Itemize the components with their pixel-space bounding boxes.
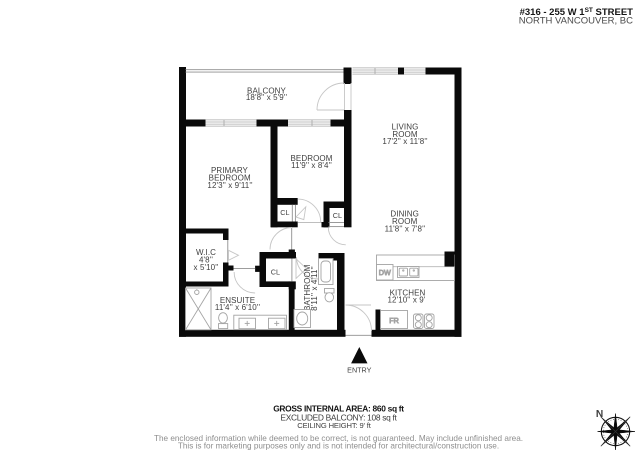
svg-text:11'8'' x 7'8'': 11'8'' x 7'8'' — [385, 224, 426, 233]
svg-text:11'9'' x 8'4'': 11'9'' x 8'4'' — [291, 161, 332, 170]
svg-text:DW: DW — [379, 268, 391, 277]
svg-text:CL: CL — [333, 211, 342, 220]
svg-text:x 5'10'': x 5'10'' — [194, 263, 219, 272]
svg-text:This is for marketing purposes: This is for marketing purposes only and … — [178, 441, 499, 450]
svg-text:NORTH VANCOUVER, BC: NORTH VANCOUVER, BC — [519, 16, 633, 27]
svg-text:17'2'' x 11'8'': 17'2'' x 11'8'' — [382, 137, 428, 146]
svg-text:FR: FR — [389, 316, 399, 325]
svg-text:ENTRY: ENTRY — [347, 365, 371, 374]
svg-text:CEILING HEIGHT: 9' ft: CEILING HEIGHT: 9' ft — [297, 421, 371, 430]
svg-text:CL: CL — [271, 268, 280, 277]
svg-text:8'11'' x 4'11'': 8'11'' x 4'11'' — [310, 266, 319, 311]
svg-text:11'4'' x 6'10'': 11'4'' x 6'10'' — [215, 303, 261, 312]
svg-text:18'8'' x 5'9'': 18'8'' x 5'9'' — [246, 93, 288, 102]
svg-text:N: N — [596, 409, 603, 420]
svg-text:12'10'' x 9': 12'10'' x 9' — [387, 296, 425, 305]
svg-text:CL: CL — [280, 208, 289, 217]
svg-text:12'3'' x 9'11'': 12'3'' x 9'11'' — [207, 181, 253, 190]
